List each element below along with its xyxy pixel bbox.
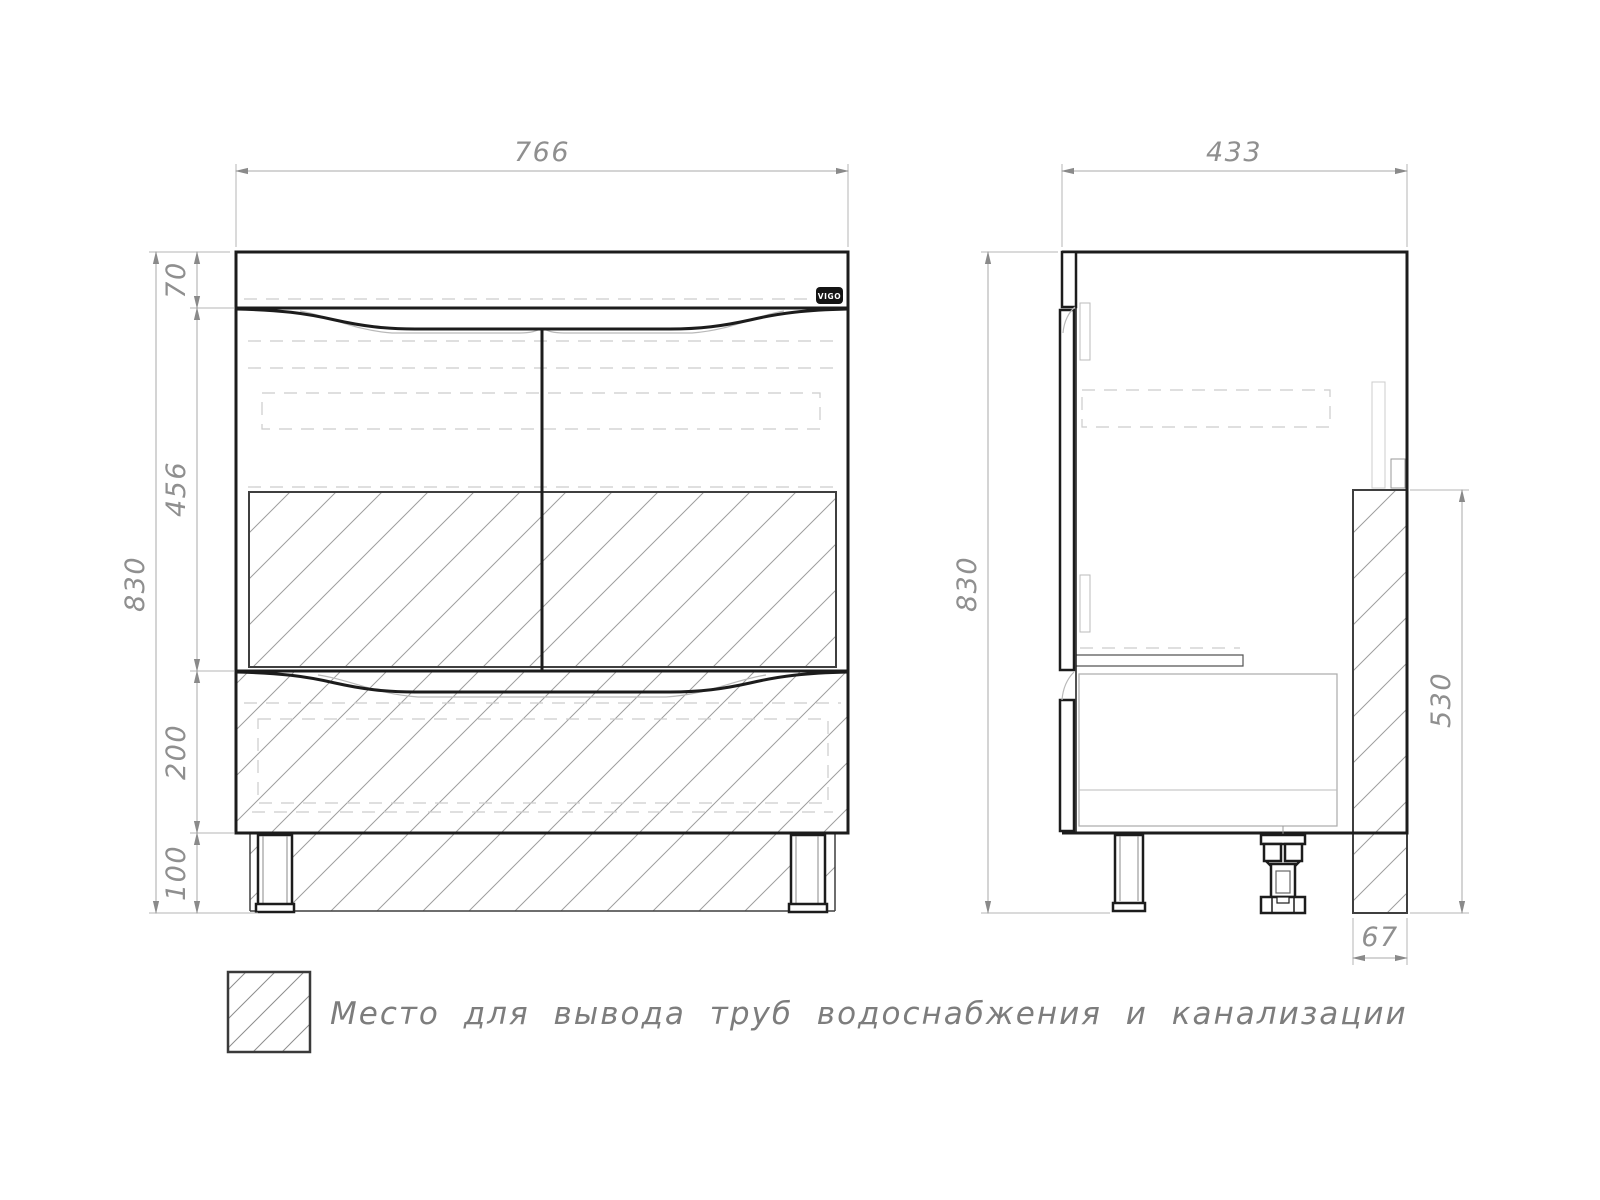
side-hidden-lines	[1080, 390, 1330, 648]
dim-label-countertop: 70	[161, 261, 192, 298]
dim-label-front-height: 830	[120, 556, 151, 612]
vanity-technical-drawing: VIGO	[0, 0, 1600, 1200]
side-back-gap	[1391, 459, 1405, 488]
dim-label-legs: 100	[161, 845, 192, 901]
side-front-leg	[1113, 835, 1145, 911]
logo-badge: VIGO	[816, 287, 843, 304]
dim-front-height: 830	[120, 252, 248, 913]
dim-pipe-zone-height: 530	[1410, 490, 1469, 913]
dim-side-depth: 433	[1062, 137, 1407, 247]
front-view: VIGO	[236, 252, 848, 912]
dim-label-front-width: 766	[514, 137, 570, 168]
dim-label-side-height: 830	[952, 556, 983, 612]
dim-label-doors: 456	[161, 461, 192, 517]
logo-text: VIGO	[818, 292, 842, 301]
side-pipe-zone	[1353, 490, 1407, 913]
legend: Место для вывода труб водоснабжения и ка…	[228, 972, 1408, 1052]
front-pipe-zone-drawer	[237, 672, 847, 911]
legend-hatch-swatch	[228, 972, 310, 1052]
front-left-leg	[256, 835, 294, 912]
dim-label-pipe-zone-depth: 67	[1361, 922, 1398, 953]
side-view	[1060, 252, 1407, 913]
side-drawer-box	[1079, 674, 1337, 826]
side-hinge-bottom	[1080, 575, 1090, 632]
dim-label-drawer: 200	[161, 724, 192, 780]
side-hinge-top	[1080, 303, 1090, 360]
front-right-leg	[789, 835, 827, 912]
dim-label-side-depth: 433	[1206, 137, 1262, 168]
dim-pipe-zone-depth: 67	[1353, 918, 1407, 965]
legend-text: Место для вывода труб водоснабжения и ка…	[330, 996, 1408, 1032]
dim-front-width: 766	[236, 137, 848, 247]
dim-label-pipe-zone-height: 530	[1426, 672, 1457, 728]
side-drawer-front	[1060, 700, 1074, 831]
side-back-panel-cutout	[1372, 382, 1385, 488]
side-shelf	[1076, 655, 1243, 666]
side-adjustable-foot	[1261, 826, 1305, 913]
side-countertop-apron	[1062, 252, 1076, 307]
side-drawer-scoop-profile	[1062, 672, 1074, 700]
front-doors-handle-wave	[236, 309, 848, 329]
side-door-panel	[1060, 310, 1074, 670]
